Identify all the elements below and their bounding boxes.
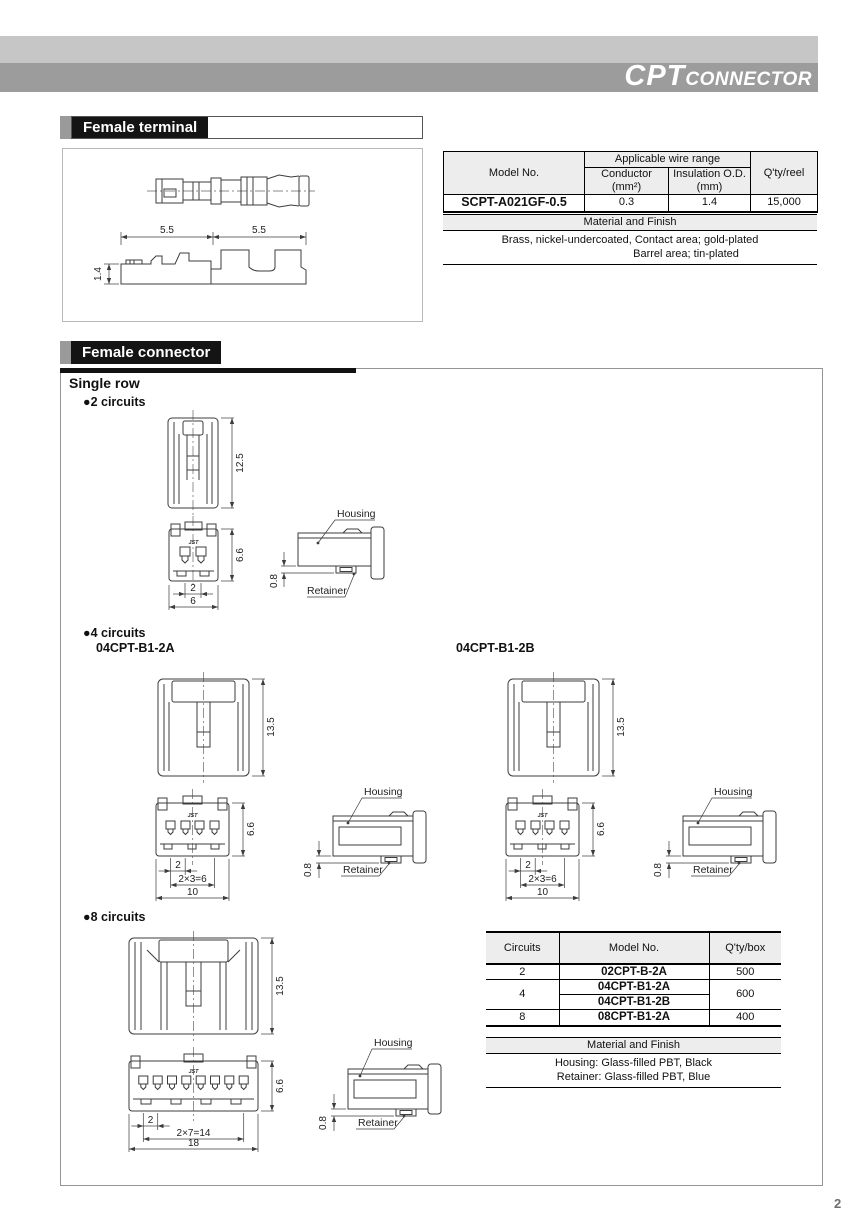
insulation-unit: (mm) [697, 181, 723, 193]
table-row: 4 04CPT-B1-2A 600 [486, 979, 781, 994]
bullet-icon: ● [83, 395, 91, 409]
material-body: Brass, nickel-undercoated, Contact area;… [443, 231, 817, 265]
page-number: 2 [834, 1196, 841, 1211]
housing-label: Housing [364, 786, 403, 798]
svg-text:2×3=6: 2×3=6 [178, 874, 207, 885]
svg-text:6.6: 6.6 [246, 822, 257, 836]
top-view: 13.5 [158, 672, 277, 783]
section-gray-square [60, 116, 71, 139]
group-title: Single row [69, 375, 140, 391]
connector-material-block: Material and Finish Housing: Glass-fille… [486, 1037, 781, 1088]
dim-pitch: 2 [131, 1113, 169, 1130]
dim-front-height: 6.6 [232, 803, 257, 856]
svg-text:5.5: 5.5 [160, 225, 174, 236]
svg-text:10: 10 [187, 887, 199, 898]
dim-5.5-right: 5.5 [213, 225, 306, 245]
material-title: Material and Finish [486, 1038, 781, 1054]
svg-text:6.6: 6.6 [596, 822, 607, 836]
col-insulation: Insulation O.D.(mm) [669, 168, 751, 195]
front-view: JST 6.6 2 [506, 789, 607, 901]
col-model-no: Model No. [559, 932, 709, 964]
svg-text:6.6: 6.6 [235, 548, 246, 562]
page-title-sub: CONNECTOR [685, 69, 812, 91]
top-view: 13.5 [508, 672, 627, 783]
material-line2: Retainer: Glass-filled PBT, Blue [486, 1070, 781, 1084]
retainer-label: Retainer [693, 864, 733, 876]
terminal-drawing: 5.5 5.5 1.4 [63, 149, 422, 321]
single-row-panel: Single row ●2 circuits [60, 368, 823, 1186]
conductor-unit: (mm²) [612, 181, 641, 193]
cell-model: 02CPT-B-2A [559, 964, 709, 979]
terminal-profile-view: 5.5 5.5 1.4 [93, 225, 306, 284]
cell-circuits: 8 [486, 1009, 559, 1026]
banner-bar-dark: CPTCONNECTOR [0, 63, 818, 92]
svg-text:13.5: 13.5 [266, 717, 277, 737]
front-view: JST 6.6 2 [156, 789, 257, 901]
bullet-icon: ● [83, 910, 91, 924]
col-circuits: Circuits [486, 932, 559, 964]
side-view: Housing Retainer 0.8 [318, 1037, 441, 1131]
circuits8-label: 8 circuits [91, 910, 146, 924]
drawing-8-circuits: 13.5 [116, 929, 536, 1164]
section-title-female-terminal: Female terminal [72, 117, 208, 138]
label-8-circuits: ●8 circuits [83, 910, 145, 924]
terminal-side-view [147, 175, 315, 207]
material-body: Housing: Glass-filled PBT, Black Retaine… [486, 1054, 781, 1088]
dim-retainer: 0.8 [269, 552, 334, 588]
dim-pitch: 2 [159, 858, 198, 875]
section-gray-square [60, 341, 71, 364]
dim-pitch: 2 [509, 858, 548, 875]
terminal-spec-table: Model No. Applicable wire range Q'ty/ree… [443, 151, 818, 213]
page-title-main: CPT [624, 63, 685, 90]
model-name-04cpt-b1-2b: 04CPT-B1-2B [456, 641, 535, 655]
top-view: 12.5 [168, 410, 246, 516]
connector-model-table: Circuits Model No. Q'ty/box 2 02CPT-B-2A… [486, 931, 781, 1027]
svg-text:1.4: 1.4 [93, 267, 104, 281]
svg-text:6.6: 6.6 [275, 1079, 286, 1093]
cell-qty: 15,000 [751, 195, 818, 212]
col-model-no: Model No. [444, 152, 585, 195]
section-outline-box: Female terminal [71, 116, 423, 139]
material-line2: Barrel area; tin-plated [443, 247, 817, 261]
cell-model: SCPT-A021GF-0.5 [444, 195, 585, 212]
side-view: Housing Retainer 0.8 [269, 508, 384, 597]
svg-text:6: 6 [190, 596, 196, 607]
cell-insulation: 1.4 [669, 195, 751, 212]
col-conductor: Conductor(mm²) [585, 168, 669, 195]
jst-logo: JST [187, 813, 198, 819]
svg-text:13.5: 13.5 [275, 976, 286, 996]
terminal-drawing-panel: 5.5 5.5 1.4 [62, 148, 423, 322]
cell-model: 08CPT-B1-2A [559, 1009, 709, 1026]
front-view: JST 6.6 2 [129, 1047, 286, 1152]
cell-model: 04CPT-B1-2B [559, 994, 709, 1009]
svg-text:2: 2 [148, 1115, 154, 1126]
datasheet-page: CPTCONNECTOR Female terminal [0, 0, 868, 1228]
svg-text:0.8: 0.8 [303, 863, 314, 877]
terminal-material-block: Material and Finish Brass, nickel-underc… [443, 214, 817, 265]
jst-logo: JST [188, 540, 199, 546]
table-row: 2 02CPT-B-2A 500 [486, 964, 781, 979]
cell-qty: 500 [709, 964, 781, 979]
col-qty-reel: Q'ty/reel [751, 152, 818, 195]
label-4-circuits: ●4 circuits [83, 626, 145, 640]
panel-accent-bar [60, 368, 356, 373]
svg-text:12.5: 12.5 [235, 453, 246, 473]
housing-label: Housing [374, 1037, 413, 1049]
retainer-label: Retainer [343, 864, 383, 876]
dim-front-height: 6.6 [261, 1061, 286, 1111]
cell-circuits: 2 [486, 964, 559, 979]
svg-text:0.8: 0.8 [318, 1116, 329, 1130]
housing-label: Housing [714, 786, 753, 798]
dim-height: 12.5 [221, 418, 246, 508]
section-title-female-connector: Female connector [71, 341, 221, 364]
svg-text:18: 18 [188, 1138, 200, 1149]
side-view: Housing Retainer 0.8 [653, 786, 776, 878]
svg-text:0.8: 0.8 [269, 574, 280, 588]
dim-height: 13.5 [261, 938, 286, 1034]
side-view: Housing Retainer 0.8 [303, 786, 426, 878]
col-wire-range: Applicable wire range [585, 152, 751, 168]
svg-text:5.5: 5.5 [252, 225, 266, 236]
col-qty-box: Q'ty/box [709, 932, 781, 964]
retainer-label: Retainer [307, 585, 347, 597]
cell-qty: 400 [709, 1009, 781, 1026]
front-view: JST 6.6 2 [169, 516, 246, 610]
housing-label: Housing [337, 508, 376, 520]
material-line1: Brass, nickel-undercoated, Contact area;… [443, 233, 817, 247]
model-name-04cpt-b1-2a: 04CPT-B1-2A [96, 641, 175, 655]
jst-logo: JST [188, 1069, 199, 1075]
female-terminal-header: Female terminal [60, 116, 423, 139]
material-line1: Housing: Glass-filled PBT, Black [486, 1056, 781, 1070]
jst-logo: JST [537, 813, 548, 819]
svg-text:2: 2 [525, 860, 531, 871]
dim-front-height: 6.6 [221, 529, 246, 581]
dim-height: 13.5 [602, 679, 627, 776]
banner-bar-light [0, 36, 818, 63]
drawing-4-circuits-a: 13.5 [141, 669, 431, 909]
drawing-4-circuits-b: 13.5 [491, 669, 781, 909]
cell-conductor: 0.3 [585, 195, 669, 212]
svg-text:0.8: 0.8 [653, 863, 664, 877]
svg-text:13.5: 13.5 [616, 717, 627, 737]
svg-text:2×3=6: 2×3=6 [528, 874, 557, 885]
retainer-label: Retainer [358, 1117, 398, 1129]
cell-qty: 600 [709, 979, 781, 1009]
dim-1.4: 1.4 [93, 264, 119, 284]
top-view: 13.5 [129, 931, 286, 1041]
svg-text:2: 2 [175, 860, 181, 871]
circuits4-label: 4 circuits [91, 626, 146, 640]
dim-5.5-left: 5.5 [121, 225, 213, 245]
female-connector-header: Female connector [60, 341, 221, 364]
insulation-label: Insulation O.D. [673, 168, 746, 180]
material-title: Material and Finish [443, 215, 817, 231]
svg-text:10: 10 [537, 887, 549, 898]
drawing-2-circuits: 12.5 JST [121, 404, 451, 619]
bullet-icon: ● [83, 626, 91, 640]
cell-model: 04CPT-B1-2A [559, 979, 709, 994]
svg-text:2: 2 [190, 583, 196, 594]
dim-front-height: 6.6 [582, 803, 607, 856]
table-row: 8 08CPT-B1-2A 400 [486, 1009, 781, 1026]
spec-row: SCPT-A021GF-0.5 0.3 1.4 15,000 [444, 195, 818, 212]
conductor-label: Conductor [601, 168, 652, 180]
cell-circuits: 4 [486, 979, 559, 1009]
dim-height: 13.5 [252, 679, 277, 776]
